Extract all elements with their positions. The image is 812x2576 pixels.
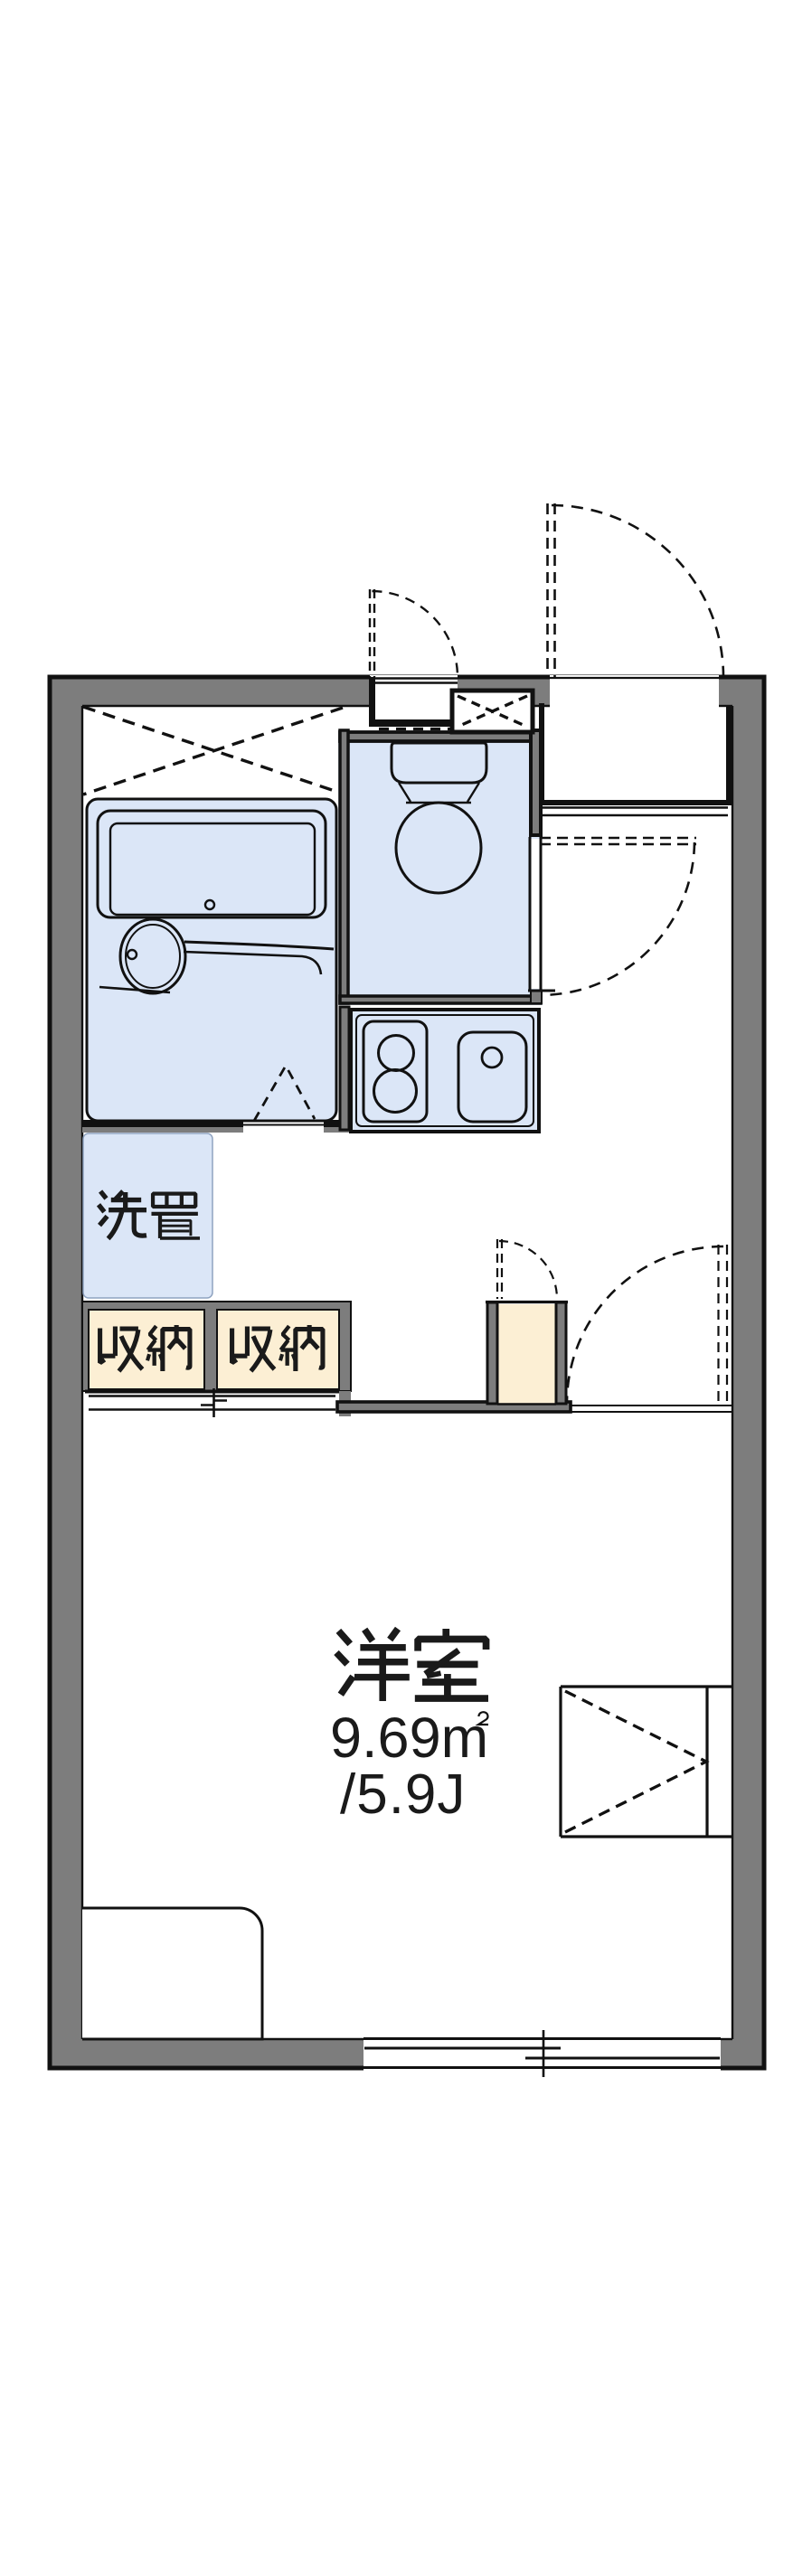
svg-text:9.69m: 9.69m xyxy=(330,1706,488,1770)
svg-text:/5.9J: /5.9J xyxy=(340,1763,466,1826)
